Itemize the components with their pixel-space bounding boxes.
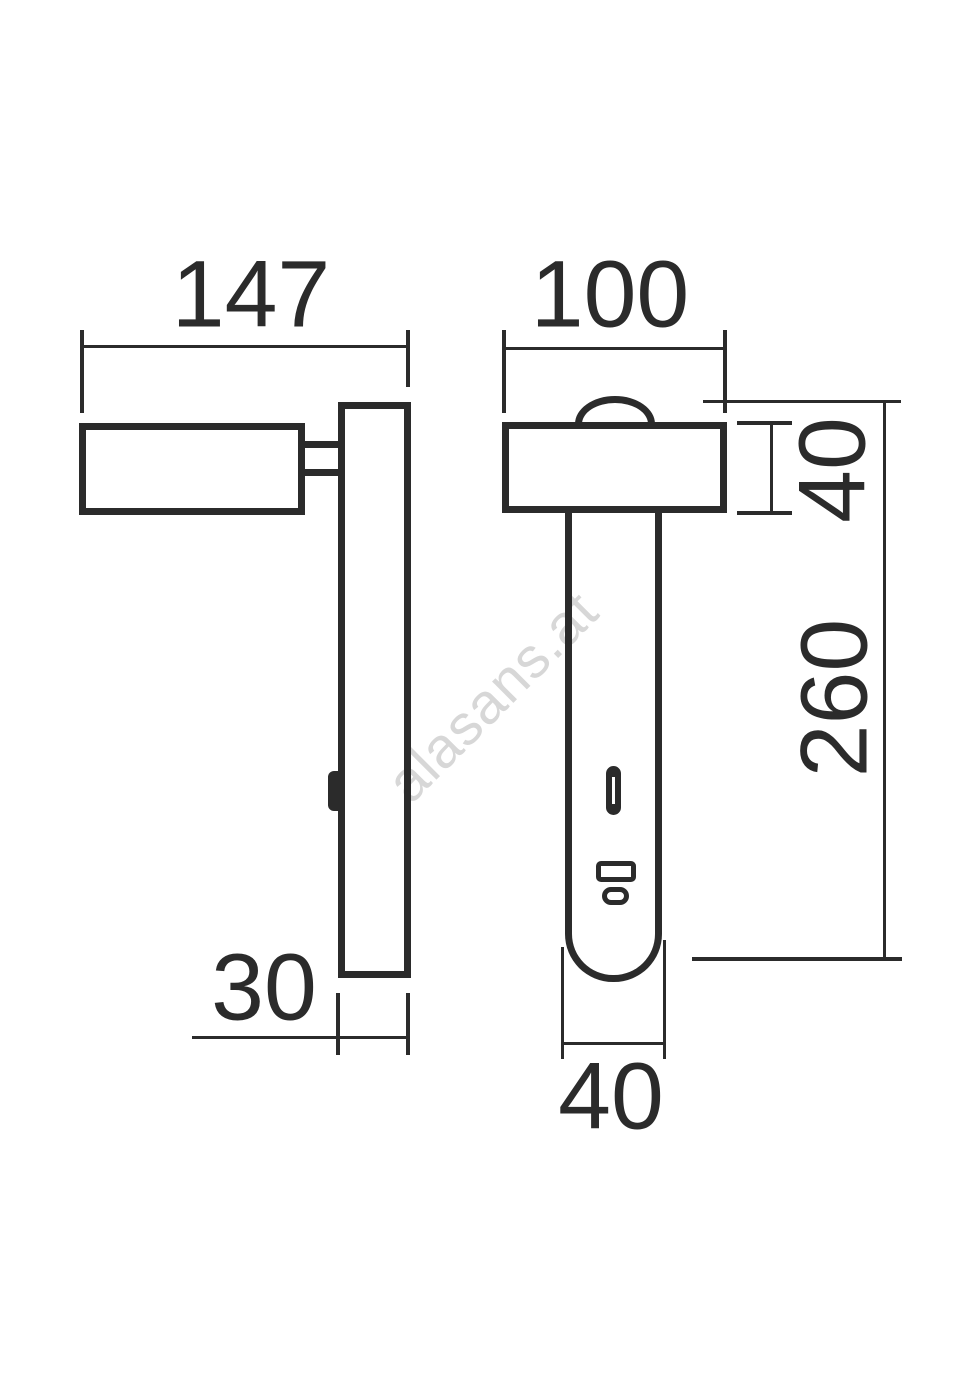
dim-260-ext-top (703, 400, 901, 403)
dim-260-tick-bottom (692, 957, 902, 961)
dim-147-tick-right (406, 330, 410, 387)
dim-100-label: 100 (531, 248, 690, 343)
dim-30-tick-left (336, 993, 340, 1055)
dim-40-stem-label: 40 (558, 1050, 664, 1145)
side-view-lamp-head (79, 423, 305, 515)
dim-30-label: 30 (211, 941, 317, 1036)
dim-40-head-line (770, 423, 773, 513)
dim-30-tick-right (406, 993, 410, 1055)
technical-drawing-canvas: 147 100 40 260 40 30 alasans.at (0, 0, 980, 1400)
side-view-wall-plate (338, 402, 411, 978)
dim-40-head-label: 40 (786, 417, 881, 523)
dim-260-label: 260 (788, 619, 883, 778)
toggle-switch-slot (606, 766, 621, 815)
dim-100-tick-left (502, 330, 506, 413)
front-view-lamp-head (502, 422, 727, 513)
toggle-switch-slit (612, 777, 615, 804)
indicator-oval (602, 887, 629, 905)
dim-147-label: 147 (172, 248, 331, 343)
dim-147-tick-left (80, 330, 84, 413)
usb-port (596, 861, 636, 882)
